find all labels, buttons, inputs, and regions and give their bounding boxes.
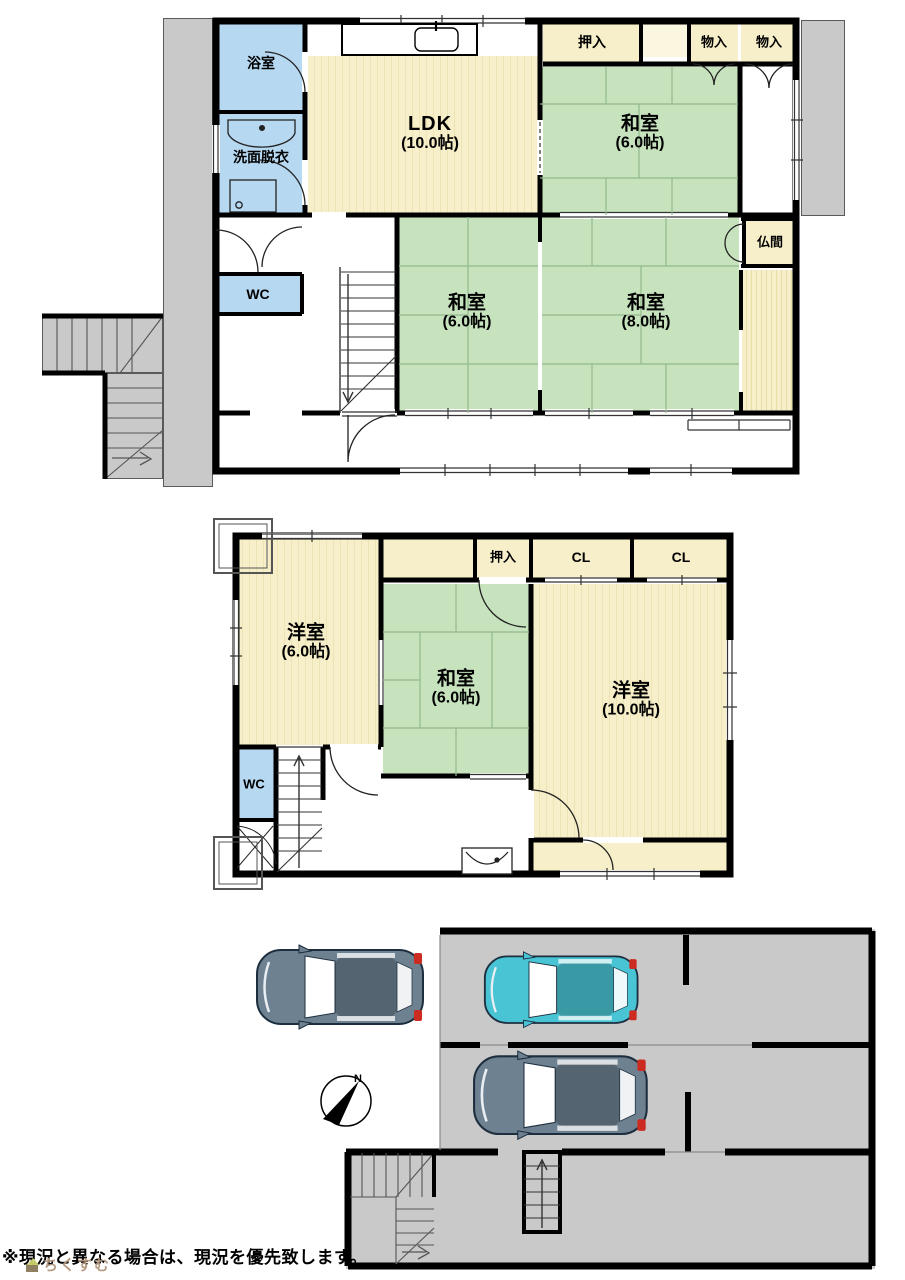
stair-2f xyxy=(277,756,322,872)
label-washitsu-sw: 和室 (6.0帖) xyxy=(443,292,492,331)
label-mono1: 物入 xyxy=(701,36,727,51)
label-cl1: CL xyxy=(572,550,591,566)
label-oshiire-1f: 押入 xyxy=(578,35,606,51)
label-yoshitsu-w: 洋室 (6.0帖) xyxy=(282,622,331,661)
label-oshiire-2f: 押入 xyxy=(490,551,516,566)
south-strip-2f xyxy=(533,842,728,872)
car-gray-west xyxy=(257,945,423,1029)
label-wc-1f: WC xyxy=(246,287,269,303)
label-washitsu-2f: 和室 (6.0帖) xyxy=(432,668,481,707)
watermark-text: ちくすむ xyxy=(43,1254,111,1275)
label-washitsu-se: 和室 (8.0帖) xyxy=(622,292,671,331)
compass-north-label: N xyxy=(354,1073,362,1085)
balcony-1f-right xyxy=(801,20,845,216)
label-yoshitsu-e: 洋室 (10.0帖) xyxy=(602,680,660,719)
label-bath: 浴室 xyxy=(247,56,275,72)
parking-lot-main xyxy=(440,929,875,1269)
watermark: ちくすむ xyxy=(26,1254,111,1275)
washbasin-2f xyxy=(462,848,512,874)
exterior-stair-lower xyxy=(105,373,163,479)
hall-strip-2f xyxy=(383,536,473,580)
watermark-logo-icon xyxy=(26,1258,40,1272)
compass: N xyxy=(321,1073,371,1126)
label-wc-2f: WC xyxy=(243,778,265,793)
label-ldk: LDK (10.0帖) xyxy=(401,113,459,153)
kitchen-band xyxy=(308,23,538,56)
floorplan-canvas: N xyxy=(0,0,905,1280)
stair-1f xyxy=(341,272,396,411)
label-washitsu-ne: 和室 (6.0帖) xyxy=(616,113,665,152)
exterior-stair-upper xyxy=(42,316,163,373)
label-butsuma: 仏間 xyxy=(757,236,783,251)
label-cl2: CL xyxy=(672,550,691,566)
engawa-east-1f xyxy=(742,270,796,413)
step-area-1f xyxy=(643,23,687,57)
balcony-2f-sw xyxy=(214,837,262,889)
label-washroom: 洗面脱衣 xyxy=(233,150,289,166)
label-mono2: 物入 xyxy=(756,36,782,51)
exterior-corridor-left xyxy=(163,18,213,487)
